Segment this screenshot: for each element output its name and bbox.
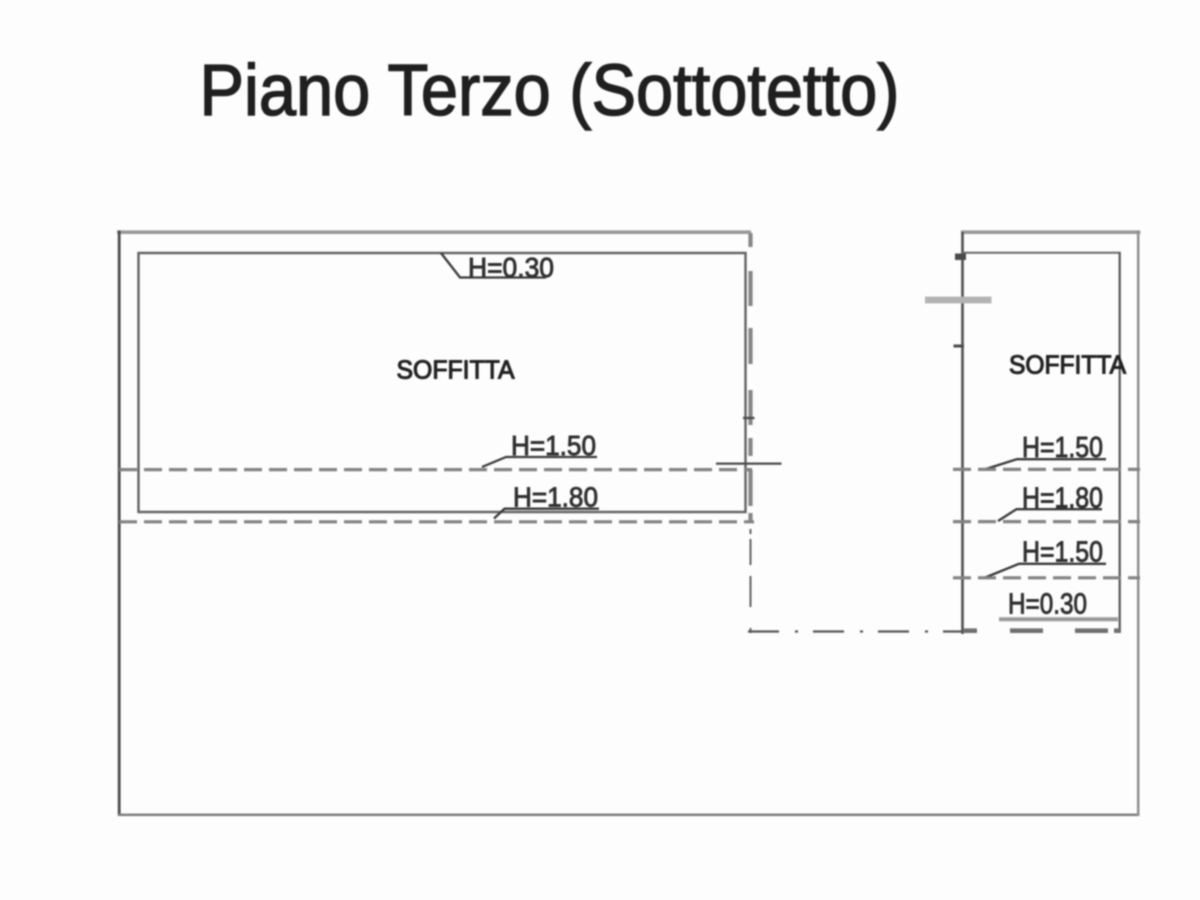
svg-text:H=1.80: H=1.80	[1022, 483, 1103, 515]
svg-text:Piano Terzo (Sottotetto): Piano Terzo (Sottotetto)	[200, 51, 900, 131]
svg-text:H=0.30: H=0.30	[1008, 589, 1087, 621]
svg-text:H=1.50: H=1.50	[1022, 537, 1103, 569]
svg-text:H=1.50: H=1.50	[1022, 432, 1103, 464]
svg-text:H=1.80: H=1.80	[513, 482, 598, 513]
svg-text:H=1.50: H=1.50	[511, 430, 596, 461]
svg-text:SOFFITTA: SOFFITTA	[1009, 350, 1127, 380]
svg-text:SOFFITTA: SOFFITTA	[397, 355, 516, 385]
svg-text:H=0.30: H=0.30	[468, 252, 554, 283]
